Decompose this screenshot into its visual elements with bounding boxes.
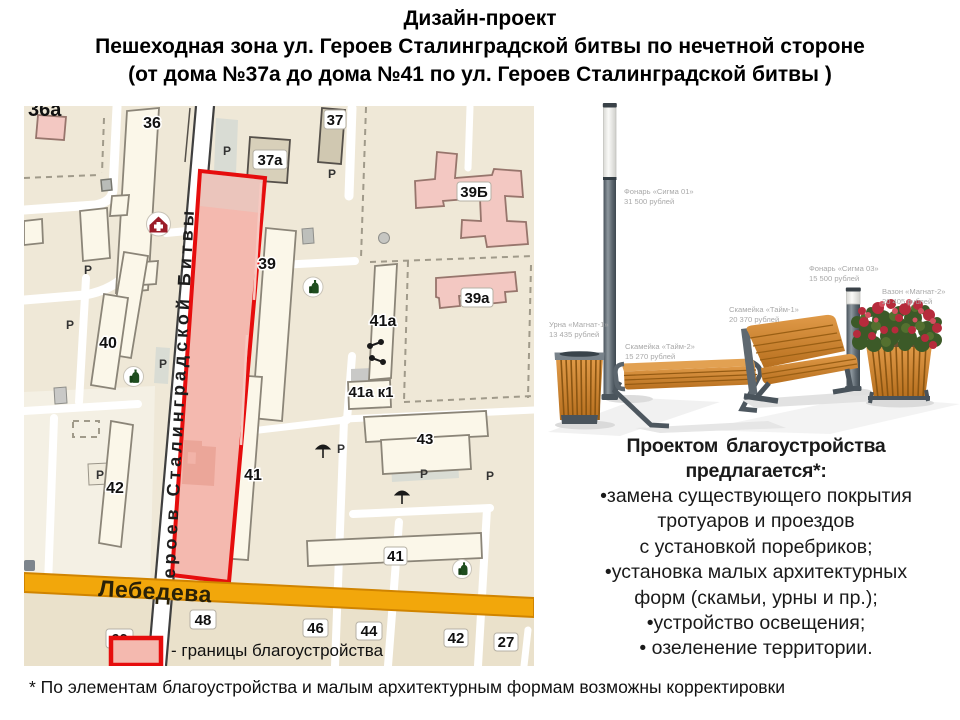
svg-text:41а к1: 41а к1	[348, 384, 393, 401]
svg-text:Р: Р	[66, 318, 74, 332]
svg-text:Скамейка «Тайм-2»: Скамейка «Тайм-2»	[625, 342, 695, 351]
svg-text:Р: Р	[328, 167, 336, 181]
svg-text:13 435 рублей: 13 435 рублей	[549, 330, 599, 339]
svg-text:Р: Р	[337, 442, 345, 456]
svg-text:20 370 рублей: 20 370 рублей	[729, 315, 779, 324]
svg-text:44: 44	[361, 623, 378, 640]
svg-text:Урна «Магнат-1»: Урна «Магнат-1»	[549, 320, 609, 329]
svg-text:39: 39	[258, 256, 276, 273]
svg-text:Вазон «Магнат-2»: Вазон «Магнат-2»	[882, 287, 945, 296]
svg-text:36а: 36а	[28, 106, 62, 121]
svg-text:15 270 рублей: 15 270 рублей	[625, 352, 675, 361]
svg-text:37а: 37а	[257, 152, 283, 169]
svg-text:Р: Р	[486, 469, 494, 483]
svg-text:Р: Р	[420, 467, 428, 481]
svg-text:37: 37	[327, 112, 344, 129]
svg-text:15 500 рублей: 15 500 рублей	[809, 274, 859, 283]
svg-text:Фонарь «Сигма 01»: Фонарь «Сигма 01»	[624, 187, 694, 196]
svg-text:39а: 39а	[464, 290, 490, 307]
svg-text:27: 27	[498, 634, 515, 651]
svg-text:43: 43	[417, 431, 434, 448]
svg-text:42: 42	[106, 480, 124, 497]
svg-text:31 500 рублей: 31 500 рублей	[624, 197, 674, 206]
svg-text:41: 41	[244, 467, 262, 484]
svg-text:39Б: 39Б	[460, 184, 488, 201]
svg-text:46: 46	[307, 620, 324, 637]
svg-text:41а: 41а	[370, 313, 397, 330]
svg-text:48: 48	[195, 612, 212, 629]
svg-text:41: 41	[387, 548, 404, 565]
svg-text:Фонарь «Сигма 03»: Фонарь «Сигма 03»	[809, 264, 879, 273]
svg-text:42: 42	[448, 630, 465, 647]
svg-text:Скамейка «Тайм-1»: Скамейка «Тайм-1»	[729, 305, 799, 314]
svg-text:Р: Р	[159, 357, 167, 371]
svg-text:36: 36	[143, 115, 161, 132]
svg-text:Р: Р	[84, 263, 92, 277]
svg-text:Р: Р	[96, 468, 104, 482]
svg-text:40: 40	[99, 335, 117, 352]
svg-text:Р: Р	[223, 144, 231, 158]
svg-text:20 405 рублей: 20 405 рублей	[882, 297, 932, 306]
